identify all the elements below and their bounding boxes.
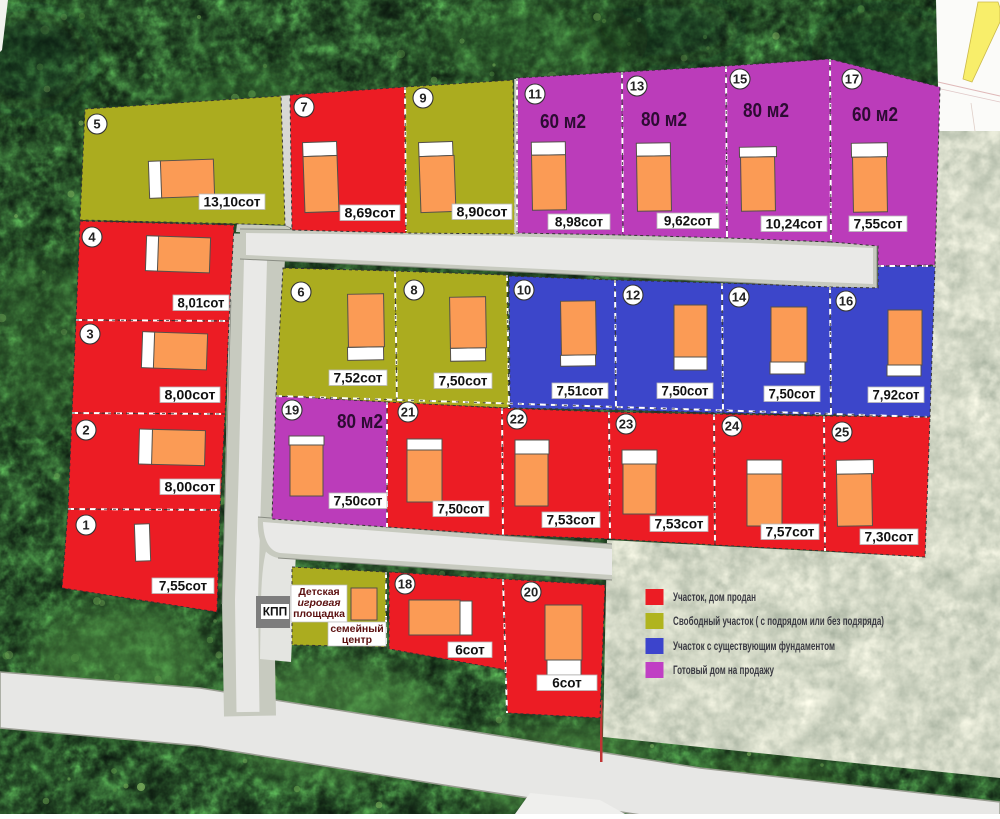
svg-text:7,53сот: 7,53сот	[547, 513, 596, 528]
svg-text:7,51сот: 7,51сот	[557, 384, 604, 399]
svg-text:8,01сот: 8,01сот	[178, 296, 225, 311]
svg-text:Готовый дом на продажу: Готовый дом на продажу	[673, 665, 774, 677]
svg-text:7,50сот: 7,50сот	[334, 494, 383, 509]
svg-text:5: 5	[93, 117, 100, 132]
svg-text:Участок с существующим фундаме: Участок с существующим фундаментом	[673, 641, 835, 653]
svg-text:8,98сот: 8,98сот	[555, 215, 604, 230]
svg-text:7,30сот: 7,30сот	[865, 530, 914, 545]
svg-text:1: 1	[82, 518, 89, 533]
svg-text:24: 24	[725, 419, 740, 434]
svg-text:7,53сот: 7,53сот	[655, 517, 704, 532]
svg-text:14: 14	[732, 290, 747, 305]
svg-text:8: 8	[410, 283, 417, 298]
svg-text:80 м2: 80 м2	[641, 109, 687, 131]
svg-text:8,90сот: 8,90сот	[457, 205, 508, 220]
svg-text:80 м2: 80 м2	[337, 411, 383, 433]
svg-text:18: 18	[398, 577, 412, 592]
svg-text:центр: центр	[342, 634, 372, 646]
svg-text:площадка: площадка	[293, 608, 345, 620]
svg-text:6: 6	[297, 285, 304, 300]
svg-text:7,50сот: 7,50сот	[662, 384, 709, 399]
svg-text:7,50сот: 7,50сот	[769, 387, 816, 402]
svg-text:8,69сот: 8,69сот	[345, 206, 396, 221]
svg-text:80 м2: 80 м2	[743, 100, 789, 122]
svg-text:4: 4	[88, 230, 96, 245]
svg-text:7,52сот: 7,52сот	[334, 371, 383, 386]
svg-text:2: 2	[82, 423, 89, 438]
svg-text:19: 19	[285, 403, 299, 418]
svg-text:9,62сот: 9,62сот	[664, 214, 713, 229]
svg-text:13,10сот: 13,10сот	[204, 195, 261, 210]
svg-text:7,92сот: 7,92сот	[873, 388, 920, 403]
svg-text:22: 22	[510, 412, 524, 427]
svg-text:20: 20	[524, 585, 538, 600]
svg-text:3: 3	[86, 327, 93, 342]
svg-text:7: 7	[300, 100, 307, 115]
svg-text:6сот: 6сот	[455, 643, 485, 658]
svg-text:10: 10	[517, 283, 531, 298]
svg-text:7,50сот: 7,50сот	[438, 502, 485, 517]
svg-text:15: 15	[733, 72, 747, 87]
svg-text:7,55сот: 7,55сот	[159, 579, 208, 594]
svg-text:60 м2: 60 м2	[540, 111, 586, 133]
svg-text:7,55сот: 7,55сот	[854, 217, 903, 232]
svg-text:9: 9	[419, 91, 426, 106]
svg-text:7,57сот: 7,57сот	[766, 525, 815, 540]
svg-text:11: 11	[528, 87, 542, 102]
svg-text:60 м2: 60 м2	[852, 104, 898, 126]
svg-text:16: 16	[839, 294, 853, 309]
svg-text:25: 25	[835, 425, 849, 440]
svg-text:Участок, дом продан: Участок, дом продан	[673, 592, 756, 604]
svg-text:8,00сот: 8,00сот	[165, 388, 216, 403]
svg-text:6сот: 6сот	[552, 676, 582, 691]
svg-text:10,24сот: 10,24сот	[766, 217, 823, 232]
svg-text:Свободный участок ( с подрядом: Свободный участок ( с подрядом или без п…	[673, 616, 884, 628]
svg-text:13: 13	[630, 79, 644, 94]
svg-text:17: 17	[845, 72, 859, 87]
svg-text:12: 12	[626, 288, 640, 303]
svg-text:21: 21	[401, 405, 415, 420]
svg-text:8,00сот: 8,00сот	[165, 480, 216, 495]
svg-text:КПП: КПП	[263, 605, 288, 619]
svg-text:7,50сот: 7,50сот	[439, 374, 488, 389]
svg-text:23: 23	[619, 417, 633, 432]
